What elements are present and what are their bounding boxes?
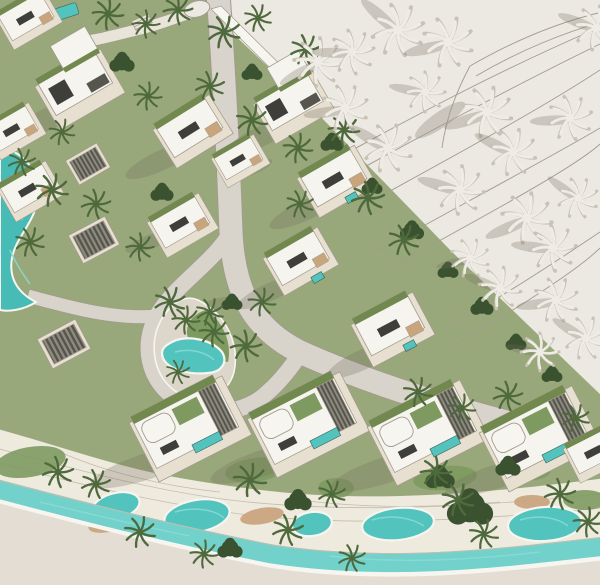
site-aerial-render [0, 0, 600, 585]
aerial-render-viewport [0, 0, 600, 585]
